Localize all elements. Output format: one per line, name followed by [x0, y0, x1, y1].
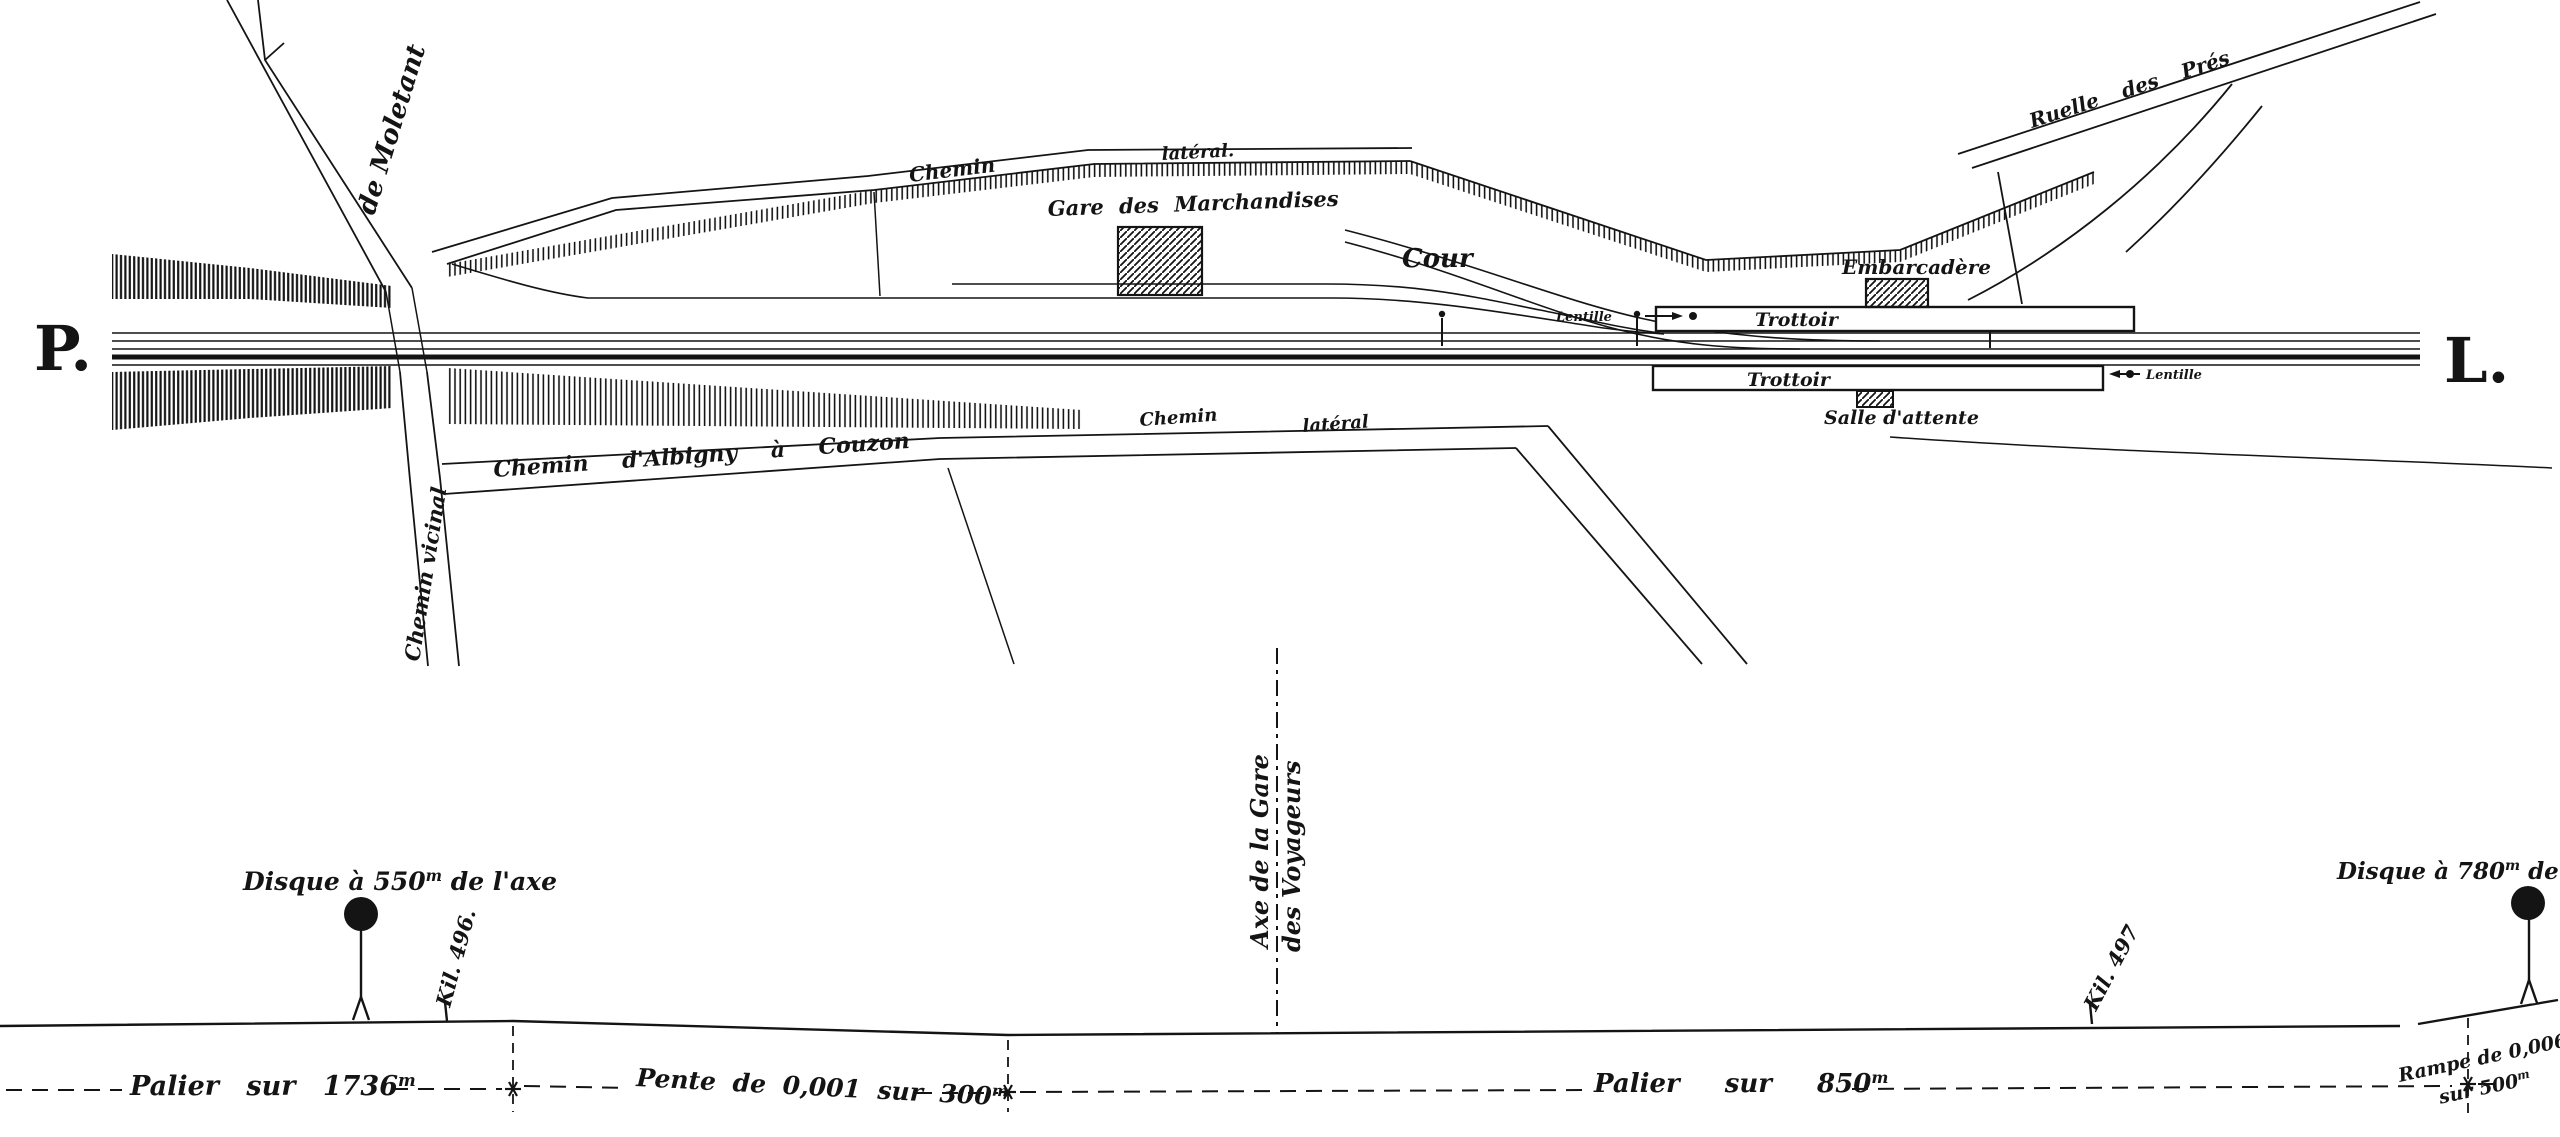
embankment-band-left-lower [112, 366, 392, 430]
disc-left-base [353, 997, 369, 1020]
embankment-band-center-lower [448, 368, 1082, 429]
junction-boundary [1998, 172, 2022, 304]
yard-west-fence [874, 192, 880, 296]
label-trottoir-upper: Trottoir [1755, 309, 1840, 331]
road-bend-east-edge [1548, 426, 1747, 664]
lentille-marker-right [2109, 370, 2140, 378]
disc-signal-left: Disque à 550m de l'axe [242, 866, 557, 1020]
road-fringe-1 [447, 190, 874, 277]
label-chemin-bottom: Chemin [1139, 405, 1218, 431]
road-bend-west-edge [1516, 448, 1702, 664]
disc-right-head [2511, 886, 2545, 920]
south-boundary-curve [1890, 437, 2552, 468]
label-disque-left: Disque à 550m de l'axe [242, 866, 557, 896]
label-road-moletant: de Moletant [352, 41, 432, 218]
endpoint-left-letter: P. [34, 312, 92, 385]
profile-ground [0, 1000, 2558, 1035]
label-axis-line1: Axe de la Gare [1245, 754, 1274, 950]
label-axis-line2: des Voyageurs [1277, 760, 1306, 952]
profile-section: Axe de la Gare des Voyageurs Disque à 55… [0, 648, 2560, 1118]
plan-section: P. L. de Moletant Chemin vicinal Chemin … [34, 0, 2552, 666]
dash-seg-3 [524, 1086, 628, 1088]
dash-seg-6 [1852, 1086, 2452, 1089]
label-disque-right: Disque à 780m de l'axe [2336, 858, 2560, 885]
label-cour: Cour [1402, 244, 1475, 274]
road-moletant-flare [265, 43, 284, 60]
label-palier-1736: Palier sur 1736m [129, 1070, 416, 1102]
embarcadere-building [1866, 279, 1928, 307]
kilometre-post-496: Kil. 496. [430, 906, 480, 1021]
goods-siding [952, 284, 1660, 333]
yard-boundary-east [1410, 161, 2094, 260]
disc-signal-right: Disque à 780m de l'axe [2336, 858, 2560, 1004]
label-salle-attente: Salle d'attente [1824, 407, 1979, 429]
crossing-left-edge [386, 292, 400, 372]
road-ruelle-south-edge [1972, 14, 2436, 168]
label-road-albigny: Chemin d'Albigny à Couzon [493, 428, 911, 483]
label-lentille-right: Lentille [2145, 368, 2202, 383]
label-palier-850: Palier sur 850m [1593, 1068, 1888, 1099]
ground-line-ramp [2418, 1000, 2558, 1024]
label-trottoir-lower: Trottoir [1747, 369, 1832, 391]
embankment-band-left-upper [112, 254, 392, 308]
ground-line-main [0, 1021, 2400, 1035]
endpoint-right-letter: L. [2444, 324, 2509, 397]
plan-labels: P. L. de Moletant Chemin vicinal Chemin … [34, 41, 2509, 663]
label-lateral-top: latéral. [1161, 140, 1235, 165]
disc-right-base [2521, 980, 2537, 1004]
label-lentille-left: Lentille [1555, 310, 1612, 325]
junction-curve-outer [1968, 84, 2232, 300]
goods-shed-building [1118, 227, 1202, 295]
railway-tracks [112, 192, 2420, 365]
label-goods-station: Gare des Marchandises [1047, 186, 1339, 221]
platform-lower [1653, 366, 2103, 390]
station-axis: Axe de la Gare des Voyageurs [1245, 648, 1306, 1034]
road-fringe-6 [1900, 172, 2094, 262]
dash-seg-5 [1020, 1090, 1586, 1092]
label-embarcadere: Embarcadère [1841, 255, 1991, 279]
kilometre-post-497: Kil. 497 [2078, 920, 2144, 1024]
waiting-room-building [1857, 391, 1893, 407]
label-lateral-bottom: latéral [1302, 411, 1370, 437]
label-pente-300: Pente de 0,001 sur 300m [635, 1062, 1009, 1111]
label-road-vicinal: Chemin vicinal [399, 485, 451, 663]
station-plan-and-profile: P. L. de Moletant Chemin vicinal Chemin … [0, 0, 2560, 1137]
road-moletant-left-edge [227, 0, 386, 292]
label-kil-496: Kil. 496. [430, 906, 480, 1010]
disc-left-head [344, 897, 378, 931]
engraved-railway-plan: P. L. de Moletant Chemin vicinal Chemin … [0, 0, 2560, 1137]
field-boundary [948, 468, 1014, 664]
label-kil-497: Kil. 497 [2078, 920, 2144, 1015]
platform-upper [1656, 307, 2134, 331]
